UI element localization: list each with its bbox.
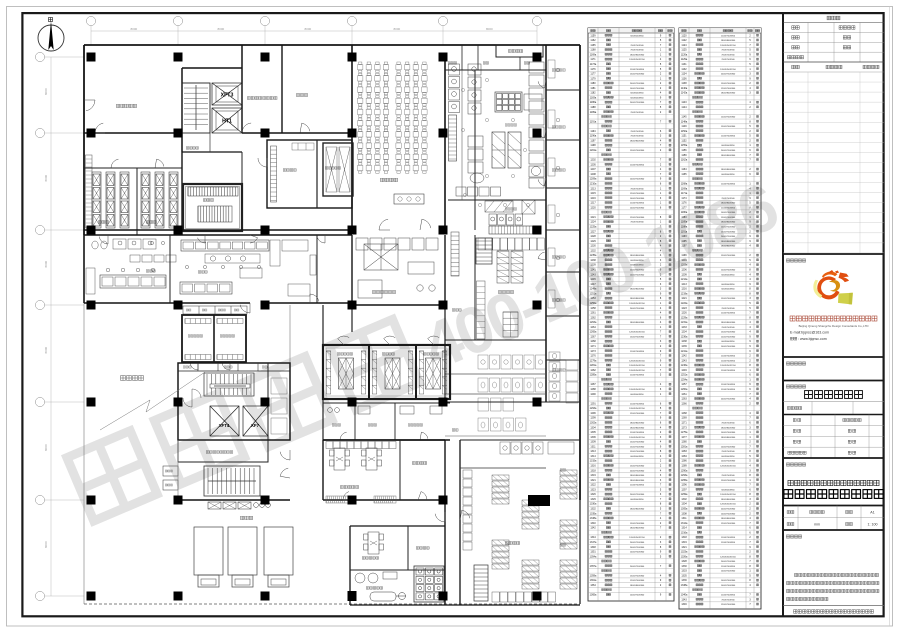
svg-text:1201: 1201 [681,259,687,262]
svg-text:1100X700X850: 1100X700X850 [630,69,645,71]
svg-text:1296: 1296 [681,484,687,487]
svg-text:1291: 1291 [590,402,596,405]
svg-text:1261: 1261 [681,393,687,396]
svg-text:1200X700X800: 1200X700X800 [721,336,736,338]
svg-text:1500X700X800: 1500X700X800 [630,466,645,468]
svg-text:700X700X940: 700X700X940 [630,131,644,133]
svg-text:1262: 1262 [590,316,596,319]
svg-text:1100X700X850: 1100X700X850 [630,164,645,166]
svg-text:1293a: 1293a [681,474,688,477]
svg-text:1100X700X850: 1100X700X850 [721,136,736,138]
svg-text:XFT4: XFT4 [219,423,230,428]
svg-text:1138: 1138 [681,82,687,85]
svg-text:1000X700X800: 1000X700X800 [721,580,736,582]
svg-text:1148a: 1148a [681,120,688,123]
svg-text:1198: 1198 [590,144,596,147]
svg-text:1253: 1253 [590,297,596,300]
svg-text:1189a: 1189a [590,111,597,114]
svg-text:2000X750X800: 2000X750X800 [721,236,736,238]
svg-text:1183a: 1183a [590,96,597,99]
svg-text:1304: 1304 [681,503,687,506]
svg-text:1217: 1217 [590,202,596,205]
svg-text:1165: 1165 [681,173,687,176]
svg-text:1151: 1151 [681,135,687,138]
svg-text:1338a: 1338a [590,517,597,520]
svg-text:1155a: 1155a [681,144,688,147]
svg-text:1200X450X1550: 1200X450X1550 [629,537,645,539]
svg-text:1225a: 1225a [590,226,597,229]
svg-text:1000X700X800: 1000X700X800 [721,346,736,348]
svg-text:1263: 1263 [681,398,687,401]
svg-text:1290: 1290 [590,393,596,396]
svg-text:1800X800X800: 1800X800X800 [721,203,736,205]
svg-text:1200X450X1550: 1200X450X1550 [720,45,736,47]
svg-text:700X700X940: 700X700X940 [721,327,735,329]
svg-text:1500X700X800: 1500X700X800 [630,446,645,448]
svg-text:1219a: 1219a [681,292,688,295]
svg-text:2000X750X800: 2000X750X800 [721,74,736,76]
svg-text:1276: 1276 [590,355,596,358]
svg-text:1283: 1283 [681,450,687,453]
svg-text:1267: 1267 [590,335,596,338]
svg-text:1251a: 1251a [590,292,597,295]
svg-text:1236a: 1236a [681,335,688,338]
svg-text:1186a: 1186a [590,101,597,104]
svg-text:1354a: 1354a [590,555,597,558]
svg-text:8000: 8000 [218,27,225,31]
svg-text:1314: 1314 [590,455,596,458]
svg-text:1800X800X800: 1800X800X800 [630,255,645,257]
svg-text:1100X700X850: 1100X700X850 [630,403,645,405]
svg-text:1156: 1156 [681,149,687,152]
svg-text:1200X450X1550: 1200X450X1550 [629,370,645,372]
svg-text:1800X800X800: 1800X800X800 [630,480,645,482]
svg-text:2000X750X800: 2000X750X800 [630,470,645,472]
svg-text:1120: 1120 [681,34,687,37]
svg-text:2000X750X800: 2000X750X800 [630,83,645,85]
svg-text:1280: 1280 [681,441,687,444]
svg-text:1182: 1182 [590,92,596,95]
svg-text:1286: 1286 [681,460,687,463]
svg-text:1500X700X800: 1500X700X800 [721,480,736,482]
svg-text:1277: 1277 [681,436,687,439]
svg-text:1234: 1234 [681,331,687,334]
svg-text:1231a: 1231a [681,321,688,324]
svg-text:1188a: 1188a [681,226,688,229]
svg-text:1000X700X800: 1000X700X800 [721,212,736,214]
svg-text:1100X700X850: 1100X700X850 [721,183,736,185]
svg-text:Beijing Qineng Shangchu Design: Beijing Qineng Shangchu Design Consultan… [799,324,869,328]
svg-text:1800X800X800: 1800X800X800 [721,427,736,429]
svg-text:mm: mm [814,522,820,526]
svg-text:1297: 1297 [681,488,687,491]
svg-text:1800X800X800: 1800X800X800 [721,499,736,501]
svg-text:1315a: 1315a [590,460,597,463]
svg-text:1246a: 1246a [681,364,688,367]
svg-text:700X700X940: 700X700X940 [721,59,735,61]
svg-text:1140a: 1140a [681,87,688,90]
svg-text:1233: 1233 [681,326,687,329]
svg-text:1100X700X850: 1100X700X850 [630,203,645,205]
svg-text:600X600X850: 600X600X850 [630,260,644,262]
svg-text:600X600X850: 600X600X850 [721,284,735,286]
svg-text:1142a: 1142a [681,92,688,95]
svg-text:1124: 1124 [681,44,687,47]
svg-text:1302a: 1302a [590,421,597,424]
svg-text:1213: 1213 [590,187,596,190]
svg-text:600X600X850: 600X600X850 [721,145,735,147]
svg-text:1159: 1159 [681,154,687,157]
svg-text:1500X700X800: 1500X700X800 [630,74,645,76]
svg-text:1333: 1333 [681,570,687,573]
svg-text:1221: 1221 [590,216,596,219]
svg-text:1288: 1288 [590,388,596,391]
svg-text:1800X800X800: 1800X800X800 [630,298,645,300]
svg-text:1239: 1239 [681,345,687,348]
svg-text:1241a: 1241a [681,350,688,353]
svg-text:700X700X940: 700X700X940 [630,222,644,224]
svg-text:1000X700X800: 1000X700X800 [721,513,736,515]
svg-text:1181: 1181 [590,87,596,90]
svg-text:1159: 1159 [590,34,596,37]
svg-text:1000X700X800: 1000X700X800 [630,207,645,209]
svg-text:700X700X940: 700X700X940 [630,188,644,190]
svg-text:1180a: 1180a [681,211,688,214]
svg-text:1195: 1195 [681,240,687,243]
svg-text:1193: 1193 [681,235,687,238]
svg-text:1305a: 1305a [681,508,688,511]
svg-text:1000X700X800: 1000X700X800 [630,552,645,554]
svg-text:1122: 1122 [681,39,687,42]
svg-text:700X700X940: 700X700X940 [721,54,735,56]
svg-text:1194: 1194 [590,130,596,133]
svg-text:1100X700X850: 1100X700X850 [630,432,645,434]
svg-text:1261: 1261 [590,312,596,315]
svg-text:1326a: 1326a [681,555,688,558]
svg-text:600X600X850: 600X600X850 [630,97,644,99]
svg-text:1162: 1162 [590,39,596,42]
svg-text:1251a: 1251a [681,374,688,377]
svg-text:1359a: 1359a [590,574,597,577]
svg-text:1281a: 1281a [681,445,688,448]
svg-text:1243: 1243 [590,273,596,276]
svg-text:1247: 1247 [590,283,596,286]
svg-text:1176: 1176 [681,202,687,205]
svg-text:1305: 1305 [590,431,596,434]
svg-text:1271: 1271 [590,345,596,348]
svg-text:1319: 1319 [590,474,596,477]
svg-text:1: 100: 1: 100 [868,522,878,526]
svg-text:1100X700X850: 1100X700X850 [721,35,736,37]
svg-text:1209: 1209 [681,273,687,276]
svg-text:1335: 1335 [681,574,687,577]
svg-text:1208: 1208 [590,173,596,176]
svg-text:1191a: 1191a [590,120,597,123]
svg-text:1232: 1232 [590,249,596,252]
svg-text:1330a: 1330a [590,503,597,506]
svg-text:1100X700X850: 1100X700X850 [630,375,645,377]
svg-text:1183: 1183 [681,216,687,219]
svg-text:1177: 1177 [681,206,687,209]
svg-text:600X600X850: 600X600X850 [721,456,735,458]
svg-text:1318: 1318 [590,469,596,472]
svg-text:1800X800X800: 1800X800X800 [630,509,645,511]
svg-text:1263a: 1263a [590,321,597,324]
svg-text:1299: 1299 [590,417,596,420]
svg-text:1800X800X800: 1800X800X800 [630,585,645,587]
svg-text:1100X700X850: 1100X700X850 [721,537,736,539]
svg-text:1136: 1136 [681,77,687,80]
svg-text:1100X700X850: 1100X700X850 [721,356,736,358]
svg-text:600X600X850: 600X600X850 [721,341,735,343]
svg-text:1000X700X800: 1000X700X800 [630,179,645,181]
svg-text:1347a: 1347a [590,541,597,544]
svg-text:1311: 1311 [590,445,596,448]
svg-text:600X600X850: 600X600X850 [721,274,735,276]
svg-text:1335a: 1335a [590,512,597,515]
svg-text:1100X700X850: 1100X700X850 [721,384,736,386]
svg-text:1165: 1165 [590,44,596,47]
svg-text:1800X800X800: 1800X800X800 [630,54,645,56]
svg-text:1200X450X1550: 1200X450X1550 [629,360,645,362]
svg-text:1312a: 1312a [681,522,688,525]
svg-text:700X700X940: 700X700X940 [630,45,644,47]
svg-text:600X600X850: 600X600X850 [721,174,735,176]
svg-text:1271: 1271 [681,421,687,424]
svg-text:1260a: 1260a [681,388,688,391]
svg-text:1168a: 1168a [681,182,688,185]
svg-text:1299a: 1299a [681,493,688,496]
svg-text:600X600X850: 600X600X850 [630,456,644,458]
svg-text:1200X450X1550: 1200X450X1550 [629,332,645,334]
svg-text:1221: 1221 [681,297,687,300]
svg-text:1207: 1207 [590,168,596,171]
svg-text:1273: 1273 [590,350,596,353]
svg-text:1216: 1216 [681,288,687,291]
svg-text:1800X800X800: 1800X800X800 [630,475,645,477]
svg-text:1100X700X850: 1100X700X850 [721,389,736,391]
svg-text:1213: 1213 [681,283,687,286]
svg-text:1296: 1296 [590,412,596,415]
svg-text:1200X700X800: 1200X700X800 [630,413,645,415]
svg-text:1243: 1243 [681,359,687,362]
svg-text:1200X450X1550: 1200X450X1550 [720,365,736,367]
svg-text:1346: 1346 [681,603,687,606]
svg-text:1173a: 1173a [590,63,597,66]
svg-text:1266: 1266 [681,402,687,405]
svg-text:1500X700X800: 1500X700X800 [630,575,645,577]
svg-text:1500X700X800: 1500X700X800 [630,336,645,338]
svg-text:1196a: 1196a [590,135,597,138]
svg-text:1169a: 1169a [681,187,688,190]
svg-text:1318: 1318 [681,536,687,539]
svg-text:1226: 1226 [681,312,687,315]
svg-text:1200X700X800: 1200X700X800 [630,193,645,195]
svg-text:E-mail:bjqnsc@163.com: E-mail:bjqnsc@163.com [790,331,829,335]
svg-text:1248a: 1248a [590,288,597,291]
svg-text:1344: 1344 [590,536,596,539]
svg-text:1800X800X800: 1800X800X800 [721,155,736,157]
svg-text:1500X700X800: 1500X700X800 [630,523,645,525]
svg-text:1351: 1351 [590,551,596,554]
svg-text:1230: 1230 [590,245,596,248]
svg-text:1212a: 1212a [681,278,688,281]
svg-text:1200X700X800: 1200X700X800 [721,117,736,119]
svg-text:1228: 1228 [590,235,596,238]
svg-text:8000: 8000 [44,174,48,181]
svg-text:8000: 8000 [44,444,48,451]
svg-text:1176: 1176 [590,68,596,71]
svg-text:1000X700X800: 1000X700X800 [630,198,645,200]
svg-text:1164: 1164 [681,168,687,171]
svg-text:1287: 1287 [590,383,596,386]
svg-text:1500X700X800: 1500X700X800 [721,126,736,128]
svg-text:8000: 8000 [44,346,48,353]
svg-text:600X600X850: 600X600X850 [630,93,644,95]
svg-text:1304: 1304 [590,426,596,429]
svg-text:1316: 1316 [590,465,596,468]
svg-text:1336: 1336 [681,579,687,582]
svg-text:700X700X940: 700X700X940 [630,136,644,138]
svg-text:XFT3: XFT3 [221,93,234,99]
svg-text:HT1: HT1 [222,119,232,125]
svg-text:1000X700X800: 1000X700X800 [721,571,736,573]
svg-text:1200X450X1550: 1200X450X1550 [720,556,736,558]
svg-text:1202: 1202 [590,159,596,162]
svg-text:1100X700X850: 1100X700X850 [721,313,736,315]
svg-text:700X700X940: 700X700X940 [630,50,644,52]
svg-text:1203a: 1203a [681,264,688,267]
svg-text:1800X800X800: 1800X800X800 [630,140,645,142]
svg-text:1500X700X800: 1500X700X800 [721,298,736,300]
svg-text:1134: 1134 [681,73,687,76]
svg-text:1332: 1332 [590,508,596,511]
svg-text:1279a: 1279a [590,359,597,362]
svg-text:1200X450X1550: 1200X450X1550 [629,437,645,439]
svg-text:1328: 1328 [681,560,687,563]
svg-text:1265a: 1265a [590,331,597,334]
svg-text:1800X800X800: 1800X800X800 [630,422,645,424]
svg-text:1150a: 1150a [681,130,688,133]
svg-text:1311: 1311 [681,517,687,520]
svg-text:1200X450X1550: 1200X450X1550 [629,59,645,61]
svg-text:1242: 1242 [681,355,687,358]
svg-text:1245: 1245 [590,278,596,281]
svg-text:2000X750X800: 2000X750X800 [630,542,645,544]
svg-text:1200X700X800: 1200X700X800 [721,604,736,606]
svg-text:1330: 1330 [681,565,687,568]
svg-text:1800X800X800: 1800X800X800 [630,427,645,429]
svg-text:A1: A1 [870,510,874,514]
svg-text:2000X750X800: 2000X750X800 [630,494,645,496]
svg-text:1224: 1224 [590,221,596,224]
svg-text:8000: 8000 [44,260,48,267]
svg-text:1000X700X800: 1000X700X800 [630,274,645,276]
svg-text:1100X700X850: 1100X700X850 [721,542,736,544]
svg-text:1295a: 1295a [681,479,688,482]
svg-text:1200X450X1550: 1200X450X1550 [629,389,645,391]
svg-text:1800X800X800: 1800X800X800 [721,241,736,243]
svg-text:1152: 1152 [681,139,687,142]
svg-text:8000: 8000 [486,27,493,31]
svg-text:1257: 1257 [681,383,687,386]
svg-text:1200X700X800: 1200X700X800 [721,270,736,272]
svg-text:1800X800X800: 1800X800X800 [721,40,736,42]
svg-text:: www.bjqnsc.com: : www.bjqnsc.com [798,337,827,341]
svg-text:600X600X850: 600X600X850 [630,35,644,37]
svg-text:8000: 8000 [44,541,48,548]
svg-text:1285a: 1285a [590,374,597,377]
svg-text:1302: 1302 [681,498,687,501]
svg-text:1129a: 1129a [681,58,688,61]
svg-text:1323: 1323 [590,488,596,491]
svg-text:700X700X940: 700X700X940 [721,50,735,52]
svg-text:8000: 8000 [394,27,401,31]
svg-text:1800X800X800: 1800X800X800 [630,289,645,291]
svg-text:1500X700X800: 1500X700X800 [630,442,645,444]
svg-text:1100X700X850: 1100X700X850 [721,566,736,568]
svg-text:XF7: XF7 [251,423,260,428]
svg-text:1000X700X800: 1000X700X800 [721,585,736,587]
svg-text:1144: 1144 [681,106,687,109]
svg-text:1329: 1329 [590,498,596,501]
svg-text:1264: 1264 [590,326,596,329]
svg-text:1191a: 1191a [681,230,688,233]
svg-text:1273: 1273 [681,426,687,429]
svg-text:1500X700X800: 1500X700X800 [721,83,736,85]
svg-text:700X700X940: 700X700X940 [721,422,735,424]
svg-text:2000X750X800: 2000X750X800 [721,399,736,401]
svg-text:1200X450X1550: 1200X450X1550 [720,466,736,468]
svg-text:700X700X940: 700X700X940 [721,475,735,477]
svg-text:1268: 1268 [681,412,687,415]
svg-text:1143: 1143 [681,101,687,104]
svg-text:1200X700X800: 1200X700X800 [721,523,736,525]
svg-text:700X700X940: 700X700X940 [721,599,735,601]
svg-text:1322: 1322 [590,484,596,487]
svg-text:1365a: 1365a [590,594,597,597]
svg-text:1800X800X800: 1800X800X800 [721,93,736,95]
svg-text:1188: 1188 [590,106,596,109]
svg-text:8000: 8000 [305,27,312,31]
svg-text:1800X800X800: 1800X800X800 [721,437,736,439]
svg-text:700X700X940: 700X700X940 [721,308,735,310]
svg-text:1361a: 1361a [590,579,597,582]
svg-text:1000X700X800: 1000X700X800 [630,88,645,90]
svg-text:1180: 1180 [590,82,596,85]
svg-text:2000X750X800: 2000X750X800 [630,270,645,272]
svg-text:1179: 1179 [590,77,596,80]
svg-text:700X700X940: 700X700X940 [630,112,644,114]
svg-text:1171a: 1171a [681,192,688,195]
svg-text:1000X700X800: 1000X700X800 [721,446,736,448]
svg-text:1100X700X850: 1100X700X850 [721,370,736,372]
svg-text:2000X750X800: 2000X750X800 [721,509,736,511]
svg-text:1000X700X800: 1000X700X800 [630,595,645,597]
svg-text:2000X750X800: 2000X750X800 [721,150,736,152]
svg-text:1215: 1215 [590,192,596,195]
svg-text:1100X700X850: 1100X700X850 [721,360,736,362]
svg-text:600X600X850: 600X600X850 [630,499,644,501]
svg-text:1289: 1289 [681,465,687,468]
svg-text:2000X750X800: 2000X750X800 [630,566,645,568]
svg-text:1100X700X850: 1100X700X850 [721,207,736,209]
svg-text:1200X450X1550: 1200X450X1550 [629,408,645,410]
svg-text:1800X800X800: 1800X800X800 [630,528,645,530]
svg-text:1800X800X800: 1800X800X800 [721,222,736,224]
svg-text:2000X750X800: 2000X750X800 [721,561,736,563]
svg-text:1500X700X800: 1500X700X800 [721,332,736,334]
